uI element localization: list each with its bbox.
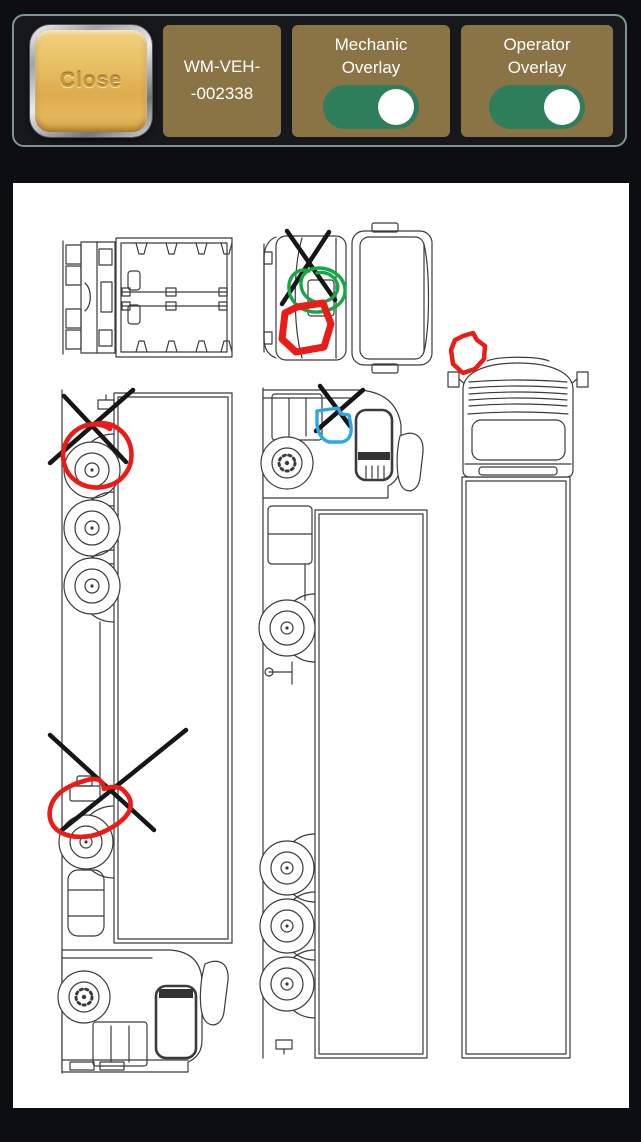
scribble-red-front xyxy=(451,333,485,373)
truck-diagram-svg xyxy=(13,183,629,1108)
operator-overlay-label: Operator Overlay xyxy=(476,33,598,81)
view-top-cab xyxy=(264,223,432,373)
vehicle-id-line1: WM-VEH- xyxy=(184,54,260,80)
toolbar: Close WM-VEH- -002338 Mechanic Overlay O… xyxy=(12,14,627,147)
view-top-rig xyxy=(63,238,232,357)
close-button[interactable]: Close xyxy=(30,25,152,137)
mechanic-overlay-toggle[interactable] xyxy=(323,85,419,129)
vehicle-damage-annotation-app: { "header": { "close_button": { "label":… xyxy=(0,0,641,1142)
operator-overlay-panel: Operator Overlay xyxy=(461,25,613,137)
operator-overlay-toggle-knob xyxy=(544,89,580,125)
x-mark-top-cab xyxy=(287,231,335,300)
mechanic-overlay-toggle-knob xyxy=(378,89,414,125)
operator-overlay-toggle[interactable] xyxy=(489,85,585,129)
mechanic-overlay-label: Mechanic Overlay xyxy=(310,33,432,81)
vehicle-id-line2: -002338 xyxy=(191,81,253,107)
inspection-canvas[interactable] xyxy=(13,183,629,1108)
view-side-left xyxy=(58,390,232,1073)
view-front xyxy=(448,357,588,1058)
view-side-right xyxy=(259,388,427,1058)
close-button-label: Close xyxy=(35,30,147,132)
mechanic-overlay-panel: Mechanic Overlay xyxy=(292,25,450,137)
vehicle-id-panel: WM-VEH- -002338 xyxy=(163,25,281,137)
